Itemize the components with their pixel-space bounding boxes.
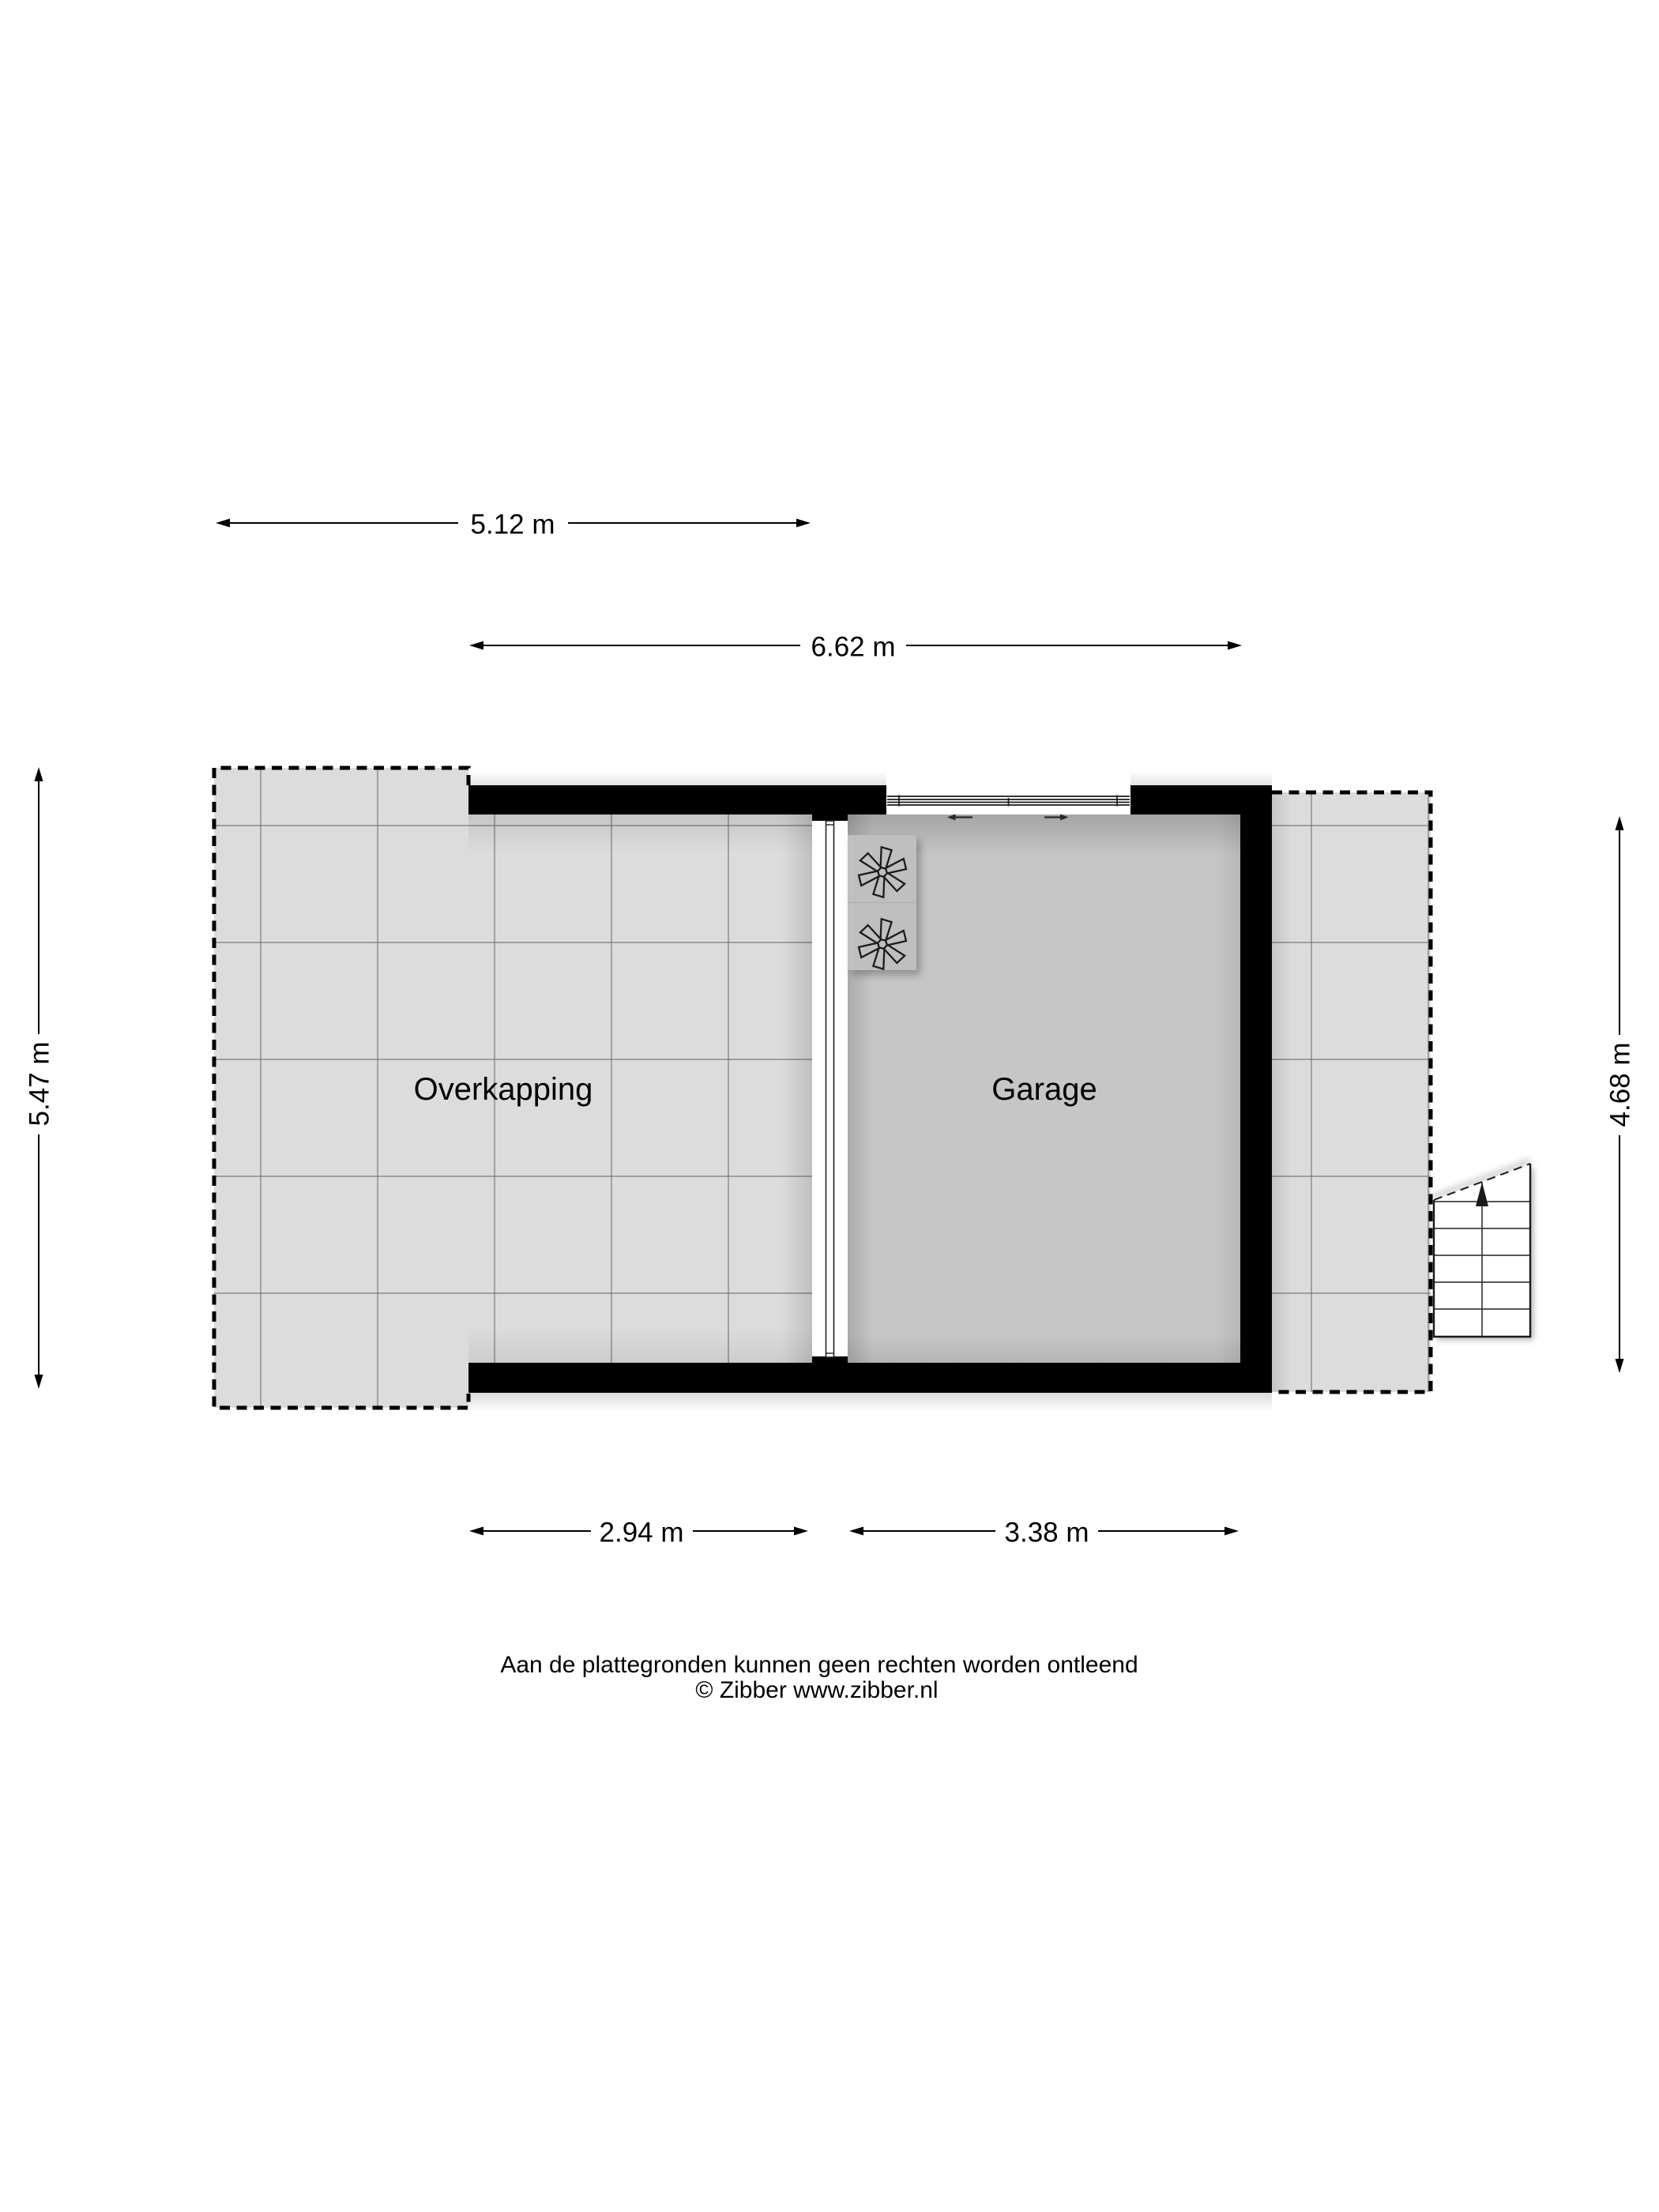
svg-text:Garage: Garage (991, 1072, 1097, 1107)
svg-text:© Zibber www.zibber.nl: © Zibber www.zibber.nl (695, 1677, 938, 1703)
svg-text:Aan de plattegronden kunnen ge: Aan de plattegronden kunnen geen rechten… (500, 1652, 1138, 1678)
svg-text:5.12 m: 5.12 m (471, 510, 555, 540)
svg-text:4.68 m: 4.68 m (1605, 1043, 1636, 1127)
svg-text:2.94 m: 2.94 m (600, 1518, 684, 1548)
svg-text:5.47 m: 5.47 m (24, 1042, 55, 1127)
svg-text:6.62 m: 6.62 m (811, 632, 896, 663)
svg-text:Overkapping: Overkapping (414, 1072, 593, 1107)
svg-text:3.38 m: 3.38 m (1005, 1518, 1089, 1548)
